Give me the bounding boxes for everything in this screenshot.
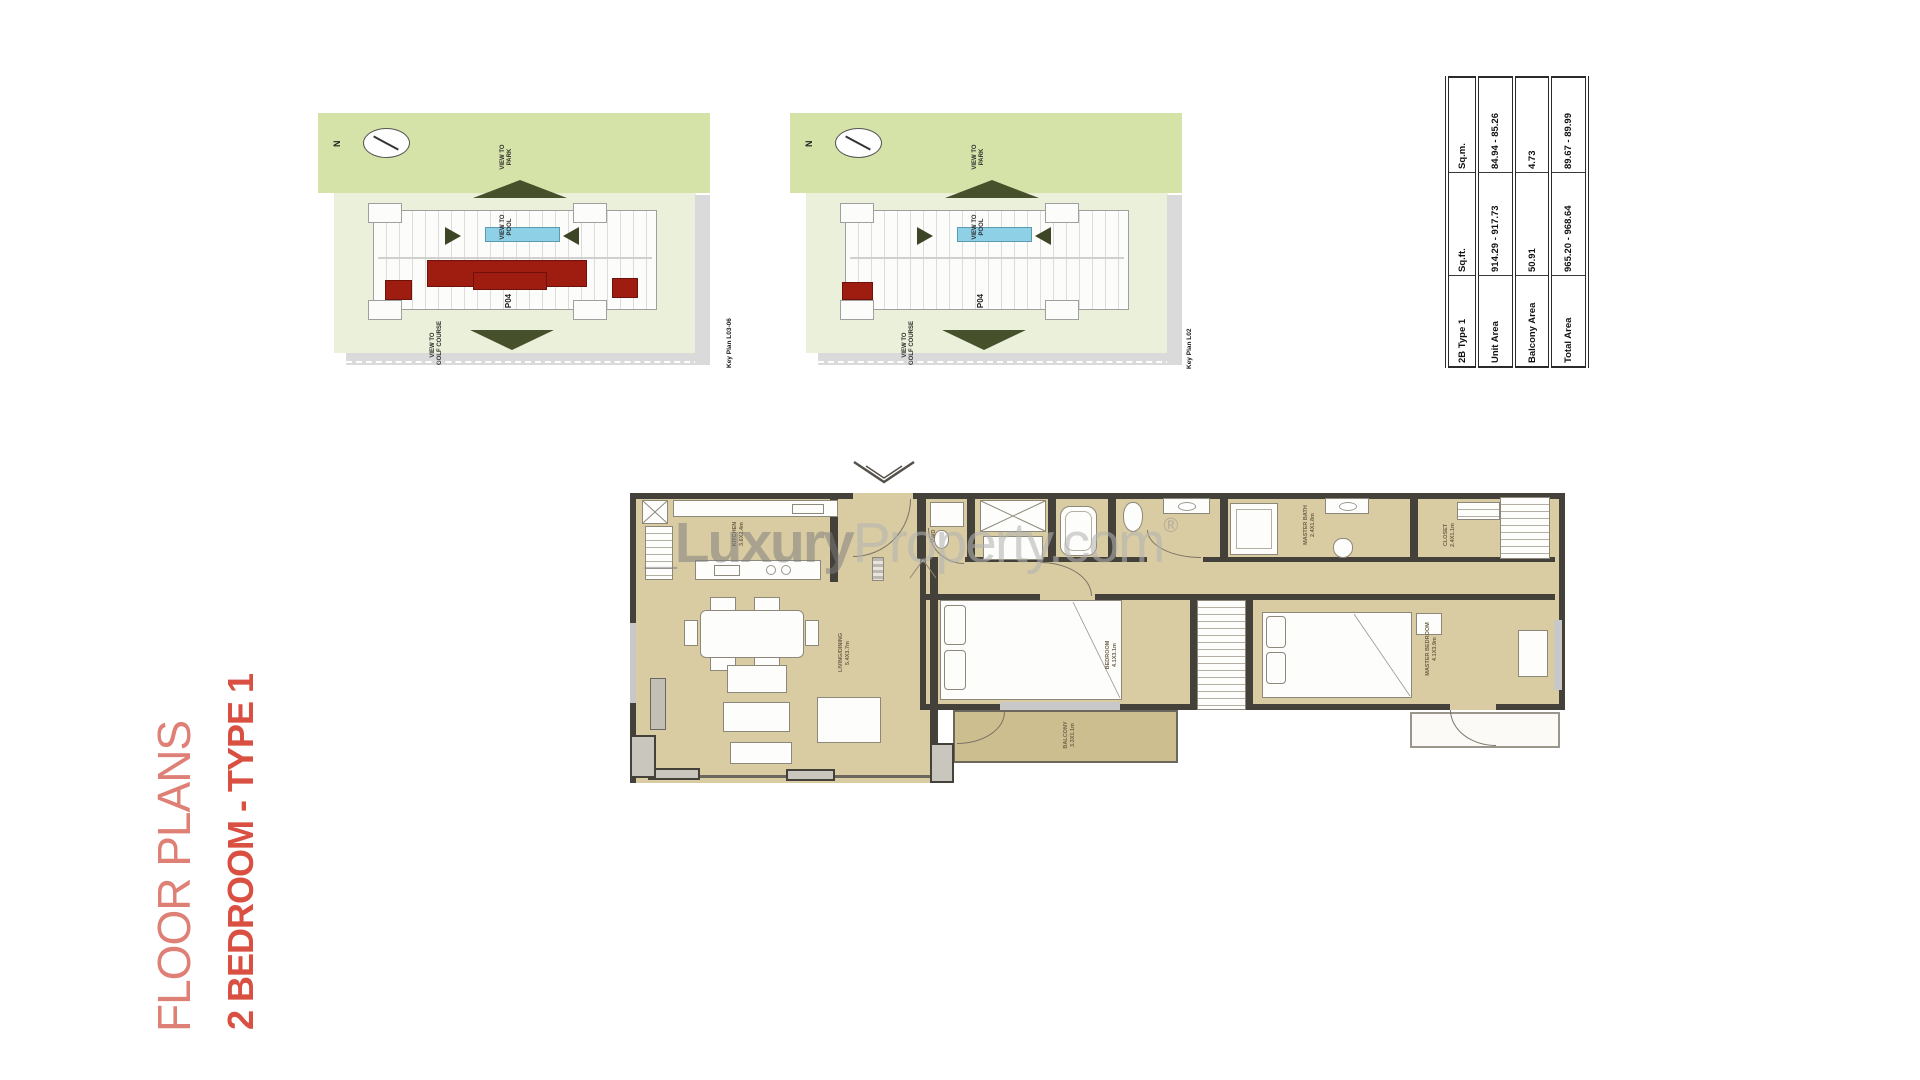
road-vertical <box>1167 195 1182 365</box>
table-cell: 4.73 <box>1514 77 1550 173</box>
table-cell: 50.91 <box>1514 173 1550 276</box>
north-label: N <box>332 133 342 147</box>
road-horizontal <box>818 353 1182 365</box>
key-plan-1: N VIEW TO PARK VIEW TO POOL P04 VIEW TO … <box>318 95 710 365</box>
road-horizontal <box>346 353 710 365</box>
page-title: FLOOR PLANS <box>147 856 201 1032</box>
balcony-label: BALCONY 3.3X1.1m <box>1063 717 1076 753</box>
building-wing <box>840 300 874 320</box>
view-to-golf-label: VIEW TO GOLF COURSE <box>902 325 916 365</box>
pool-arrow-icon <box>917 227 933 245</box>
highlighted-units <box>473 272 547 290</box>
highlighted-unit <box>612 278 638 298</box>
compass-icon <box>835 128 882 158</box>
page-subtitle: 2 BEDROOM - TYPE 1 <box>220 794 262 1030</box>
bedroom-label: BEDROOM 4.1X3.1m <box>1105 634 1118 676</box>
key-plan-2-caption: Key Plan L02 <box>1186 307 1193 369</box>
building-wing <box>573 203 607 223</box>
view-to-pool-label: VIEW TO POOL <box>500 212 514 242</box>
table-cell: Sq.ft. <box>1447 173 1477 276</box>
pool <box>957 227 1032 242</box>
park-arrow-icon <box>473 180 567 198</box>
closet-label: CLOSET 2.4X1.1m <box>1443 520 1456 550</box>
table-cell: 914.29 - 917.73 <box>1477 173 1514 276</box>
view-to-park-label: VIEW TO PARK <box>500 144 514 170</box>
building-footprint <box>845 210 1129 310</box>
view-to-golf-label: VIEW TO GOLF COURSE <box>430 325 444 365</box>
building-label: P04 <box>504 290 513 312</box>
highlighted-unit <box>385 280 412 300</box>
powder-label: PWD <box>931 525 938 547</box>
area-table: 2B Type 1 Sq.ft. Sq.m. Unit Area 914.29 … <box>1445 100 1585 368</box>
pool-arrow-icon <box>445 227 461 245</box>
compass-icon <box>363 128 410 158</box>
table-cell: Balcony Area <box>1514 276 1550 368</box>
table-cell: Sq.m. <box>1447 77 1477 173</box>
building-wing <box>1045 300 1079 320</box>
building-corridor-line <box>850 257 1124 259</box>
table-cell: Unit Area <box>1477 276 1514 368</box>
table-cell: Total Area <box>1550 276 1587 368</box>
north-label: N <box>804 133 814 147</box>
golf-arrow-icon <box>470 330 554 350</box>
kitchen-label: KITCHEN 3.6X2.4m <box>732 518 745 550</box>
building-wing <box>840 203 874 223</box>
pool-arrow-icon <box>563 227 579 245</box>
road-vertical <box>695 195 710 365</box>
building-wing <box>573 300 607 320</box>
pool <box>485 227 560 242</box>
view-to-pool-label: VIEW TO POOL <box>972 212 986 242</box>
highlighted-unit <box>842 282 873 300</box>
view-to-park-label: VIEW TO PARK <box>972 144 986 170</box>
pool-arrow-icon <box>1035 227 1051 245</box>
building-corridor-line <box>378 257 652 259</box>
building-wing <box>1045 203 1079 223</box>
master-bedroom-label: MASTER BEDROOM 4.1X3.9m <box>1425 620 1438 678</box>
plan-detail-lines <box>628 450 1588 810</box>
master-bath-label: MASTER BATH 2.4X1.8m <box>1303 502 1316 548</box>
table-cell: 84.94 - 85.26 <box>1477 77 1514 173</box>
table-cell: 89.67 - 89.99 <box>1550 77 1587 173</box>
building-wing <box>368 203 402 223</box>
table-cell: 965.20 - 968.64 <box>1550 173 1587 276</box>
key-plan-1-caption: Key Plan L03-06 <box>726 300 733 368</box>
living-dining-label: LIVING/DINING 5.4X3.7m <box>838 634 851 672</box>
golf-arrow-icon <box>942 330 1026 350</box>
building-label: P04 <box>976 290 985 312</box>
table-cell: 2B Type 1 <box>1447 276 1477 368</box>
floor-plan: KITCHEN 3.6X2.4m PWD MASTER BATH 2.4X1.8… <box>628 450 1588 810</box>
park-arrow-icon <box>945 180 1039 198</box>
building-wing <box>368 300 402 320</box>
key-plan-2: N VIEW TO PARK VIEW TO POOL P04 VIEW TO … <box>790 95 1182 365</box>
brochure-page: { "page": { "title_line1": "FLOOR PLANS"… <box>0 0 1920 1080</box>
